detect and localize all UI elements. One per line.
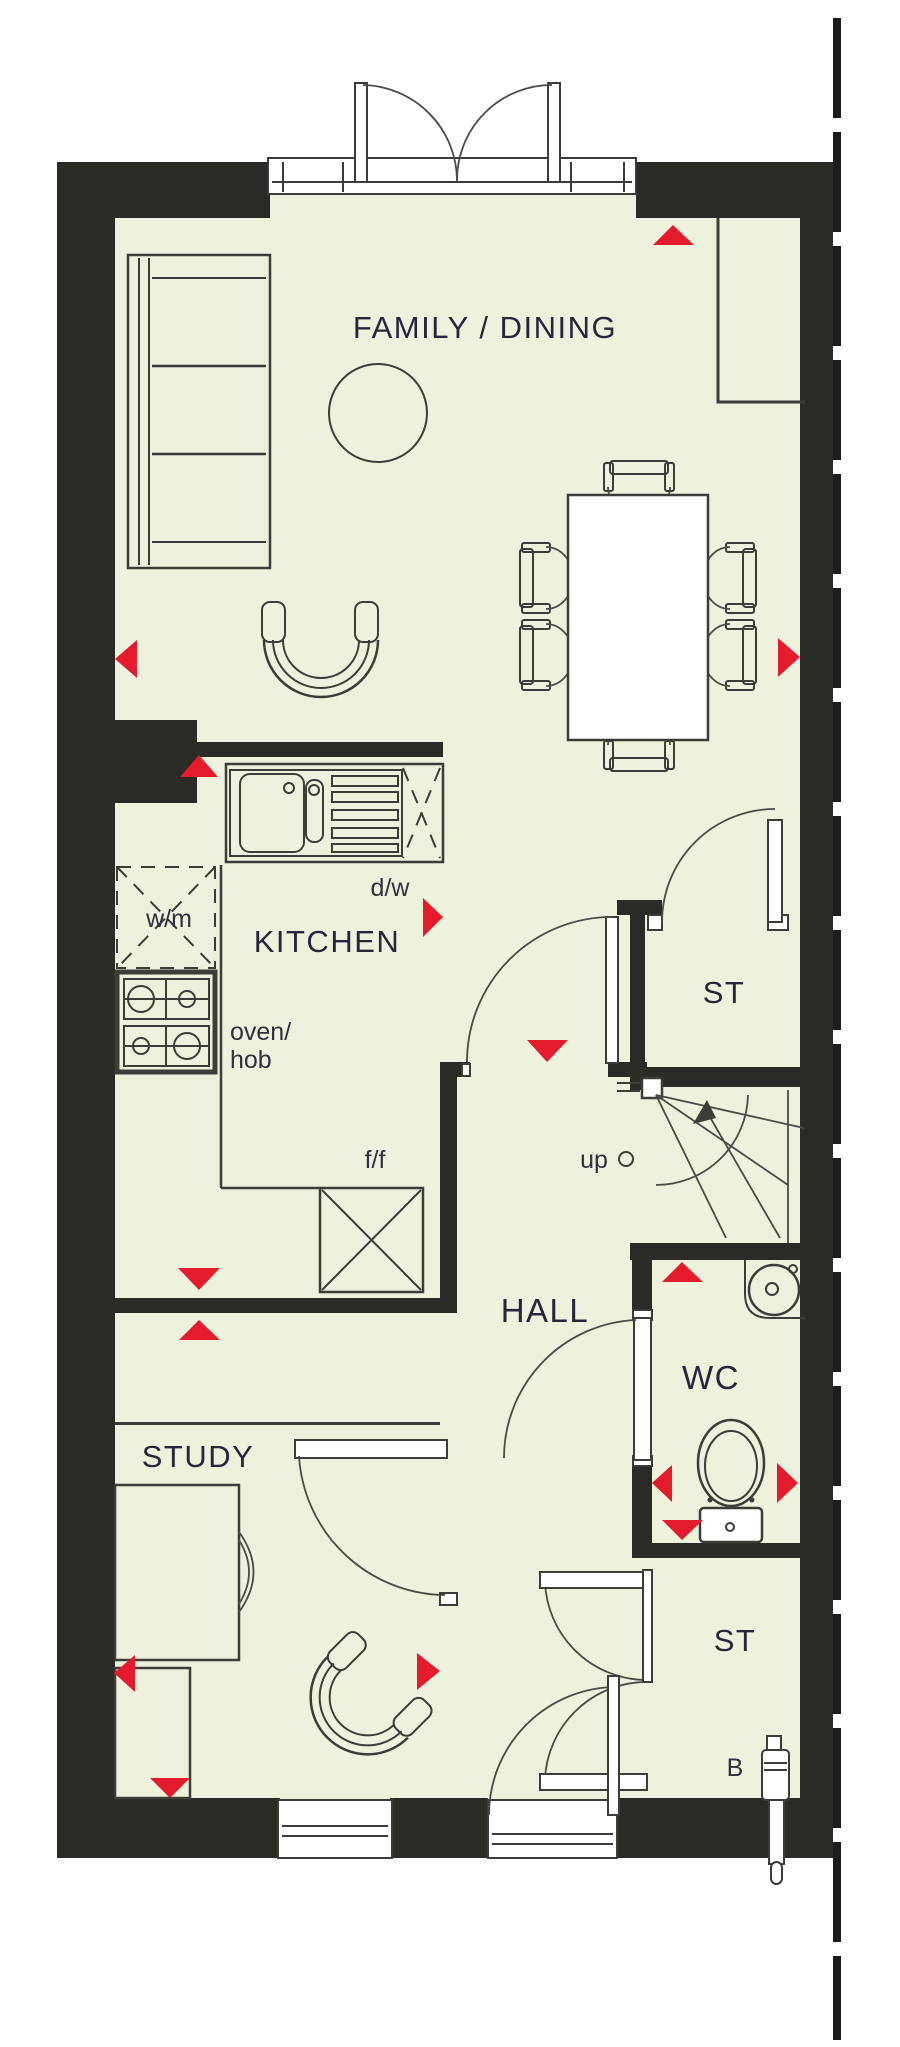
french-door-left-leaf bbox=[355, 83, 367, 182]
label-washing-machine: w/m bbox=[145, 905, 192, 933]
floorplan-canvas: FAMILY / DINING KITCHEN HALL STUDY WC ST… bbox=[0, 0, 900, 2047]
wall-wc-bottom bbox=[632, 1543, 805, 1558]
room-label-wc: WC bbox=[682, 1359, 740, 1396]
room-label-kitchen: KITCHEN bbox=[254, 924, 401, 959]
room-label-family-dining: FAMILY / DINING bbox=[353, 310, 617, 345]
study-window bbox=[278, 1800, 392, 1858]
wall-wc-left-upper bbox=[632, 1243, 652, 1318]
door-leaf bbox=[540, 1774, 647, 1790]
wall-bottom-left bbox=[57, 1798, 280, 1858]
door-leaf bbox=[768, 820, 782, 922]
door-leaf bbox=[295, 1440, 447, 1458]
label-stairs-up: up bbox=[580, 1146, 608, 1174]
wall-kitchen-hall bbox=[440, 1062, 457, 1313]
door-leaf bbox=[608, 1676, 619, 1815]
room-label-st-upper: ST bbox=[703, 975, 746, 1010]
st-partition bbox=[643, 1570, 652, 1682]
door-leaf bbox=[606, 917, 618, 1063]
label-dishwasher: d/w bbox=[371, 874, 411, 902]
wall-wc-top bbox=[630, 1243, 805, 1260]
wall-bottom-mid bbox=[390, 1798, 488, 1858]
label-oven-line2: hob bbox=[230, 1046, 272, 1074]
wall-family-kitchen bbox=[115, 742, 443, 757]
wall-study-partition-line bbox=[115, 1422, 440, 1425]
wall-pier-kitchen bbox=[115, 720, 197, 803]
wall-right bbox=[800, 162, 833, 1858]
room-label-hall: HALL bbox=[501, 1292, 590, 1329]
wall-top-left bbox=[57, 162, 270, 218]
label-fridge-freezer: f/f bbox=[365, 1146, 386, 1174]
room-label-study: STUDY bbox=[142, 1439, 255, 1474]
dining-table bbox=[568, 495, 708, 740]
floorplan-drawing: FAMILY / DINING KITCHEN HALL STUDY WC ST… bbox=[0, 0, 900, 2047]
label-boiler: B bbox=[727, 1754, 744, 1782]
label-oven-line1: oven/ bbox=[230, 1018, 291, 1046]
wall-st-upper-left bbox=[630, 915, 645, 1090]
wall-left bbox=[57, 162, 115, 1858]
wall-kitchen-study bbox=[57, 1298, 457, 1313]
cistern bbox=[700, 1508, 762, 1542]
door-leaf bbox=[540, 1572, 647, 1588]
french-doors-and-windows bbox=[268, 83, 636, 194]
door-leaf bbox=[634, 1318, 651, 1460]
wall-bottom-right bbox=[617, 1798, 833, 1858]
room-label-st-lower: ST bbox=[714, 1623, 757, 1658]
wall-nook bbox=[617, 900, 662, 915]
french-door-right-leaf bbox=[548, 83, 560, 182]
